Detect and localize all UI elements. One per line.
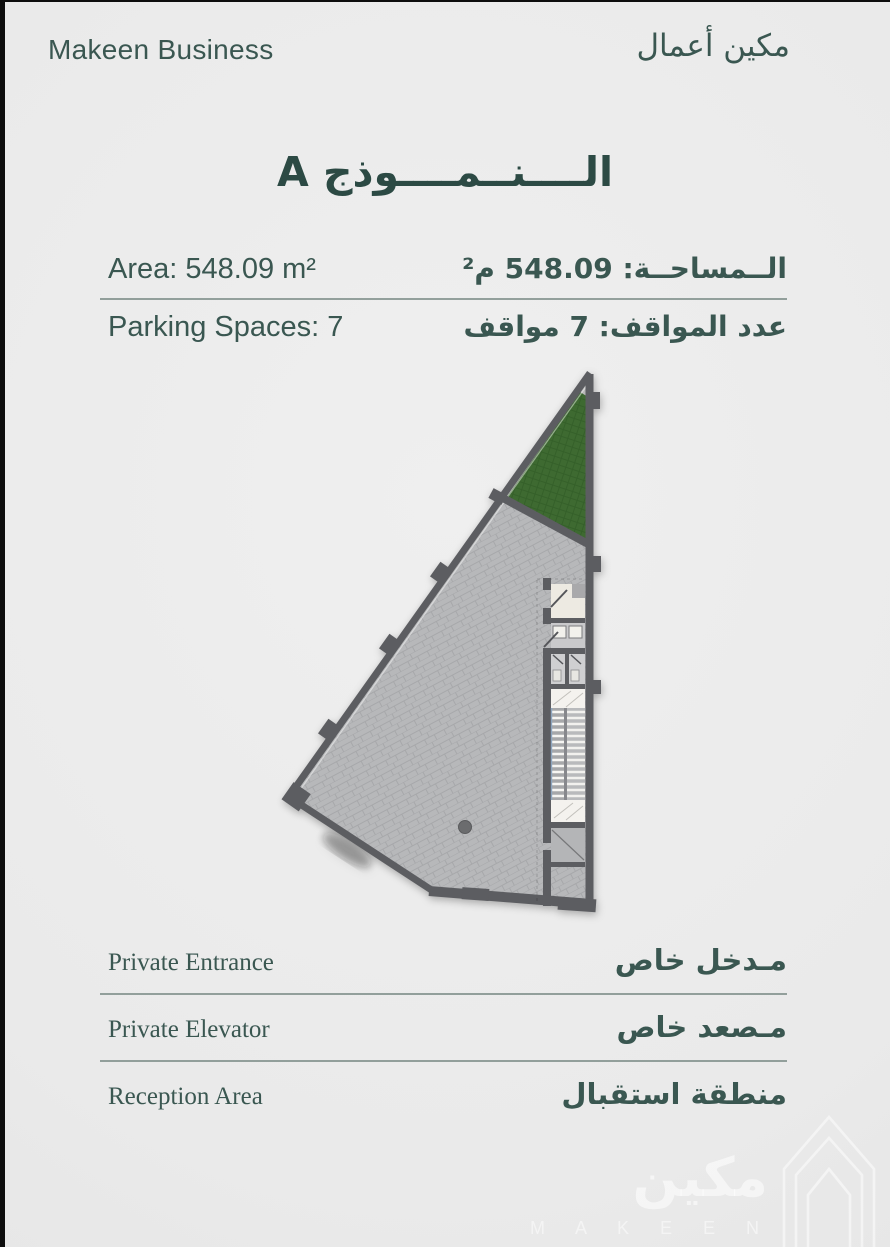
right-wall-stub-2 <box>591 680 601 694</box>
spec-row-parking: Parking Spaces: 7 عدد المواقف: 7 مواقف <box>100 300 787 356</box>
spec-row-area: Area: 548.09 m² الــمساحــة: 548.09 م² <box>100 242 787 300</box>
watermark-wordmark-arabic: مكين <box>633 1146 768 1209</box>
right-wall-stub-1 <box>591 556 601 572</box>
specs-table: Area: 548.09 m² الــمساحــة: 548.09 م² P… <box>100 242 787 356</box>
brochure-page: Makeen Business مكين أعمال الــــنــمـــ… <box>0 0 890 1247</box>
feature-row-elevator: Private Elevator مـصعد خاص <box>100 995 787 1062</box>
bottom-stub-1 <box>462 887 490 901</box>
brand-name-english: Makeen Business <box>48 34 274 66</box>
feature-arabic: مـدخل خاص <box>615 943 787 977</box>
makeen-arch-logo-icon <box>776 1111 876 1247</box>
feature-row-reception: Reception Area منطقة استقبال <box>100 1062 787 1127</box>
feature-arabic: منطقة استقبال <box>561 1077 787 1111</box>
page-title: الــــنــمــــوذج A <box>0 148 890 196</box>
watermark-wordmark-english: M A K E E N <box>530 1218 772 1239</box>
feature-row-entrance: Private Entrance مـدخل خاص <box>100 928 787 995</box>
feature-english: Reception Area <box>100 1083 263 1111</box>
features-list: Private Entrance مـدخل خاص Private Eleva… <box>100 928 787 1127</box>
area-value-arabic: الــمساحــة: 548.09 م² <box>462 252 787 285</box>
area-value-english: Area: 548.09 m² <box>100 253 316 286</box>
toilet-fixture <box>571 670 579 681</box>
feature-english: Private Entrance <box>100 949 274 977</box>
right-wall <box>586 374 594 906</box>
feature-english: Private Elevator <box>100 1016 270 1044</box>
floor-plan-image <box>270 360 620 915</box>
partition-stub <box>491 493 504 500</box>
feature-arabic: مـصعد خاص <box>617 1010 787 1044</box>
apex-stub <box>589 392 600 409</box>
parking-value-english: Parking Spaces: 7 <box>100 311 343 344</box>
brand-name-arabic: مكين أعمال <box>636 28 790 64</box>
toilet-fixture <box>553 670 561 681</box>
top-edge-border <box>0 0 890 2</box>
parking-value-arabic: عدد المواقف: 7 مواقف <box>464 310 787 343</box>
structural-column <box>459 821 472 834</box>
washbasin <box>569 626 582 638</box>
bottom-stub-2 <box>558 897 597 913</box>
